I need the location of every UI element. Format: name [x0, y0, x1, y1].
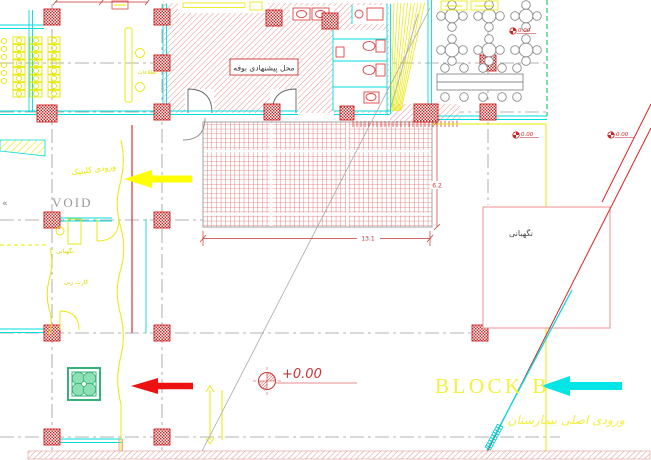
paved-courtyard [203, 121, 460, 227]
spot-level-road-right: 0.00 [608, 132, 634, 138]
long-table [437, 64, 523, 102]
spot-level-text: 0.00 [521, 132, 534, 138]
cyan-main-entrance-arrow [541, 376, 622, 396]
ramp-strip [390, 3, 425, 111]
spot-level-text: 0.00 [616, 132, 629, 138]
main-level-text: +0.00 [282, 367, 322, 382]
buffet-area: محل پیشنهادی بوفه [164, 0, 460, 121]
info-counter [125, 28, 132, 102]
block-b-label: BLOCK B [435, 374, 550, 398]
guard-post-box: نگهبانی [483, 207, 610, 328]
void-marker: « [2, 199, 8, 209]
guard-desk [68, 219, 81, 244]
bottom-wall-strip [28, 451, 650, 459]
planter [68, 368, 100, 400]
dimension-vertical [434, 119, 440, 230]
dim-height-text: 6.2 [432, 183, 442, 190]
yellow-entrance-arrow [124, 170, 192, 188]
dim-width-text: 13.1 [361, 236, 375, 243]
stairs [0, 140, 45, 156]
clinic-entrance-label: ورودی کلینیک [71, 162, 117, 177]
information-label: اطلاعات [137, 70, 157, 76]
door-arc [97, 219, 119, 241]
spot-level-terrace: 0.00 [510, 28, 536, 34]
card-punch-label: کارت زنی [64, 279, 89, 286]
guard-station-label: نگهبانی [56, 247, 74, 255]
top-dimension [53, 0, 150, 5]
void-label: VOID [52, 195, 93, 210]
door-arc [183, 118, 205, 140]
dimension-horizontal [200, 231, 433, 246]
hospital-main-entrance-label: ورودی اصلی بیمارستان [508, 413, 625, 427]
waiting-room: اطلاعات [1, 28, 157, 102]
guard-post-label: نگهبانی [509, 228, 533, 238]
terrace-tables [437, 1, 542, 102]
site-plan-canvas: محل پیشنهادی بوفه [0, 0, 651, 460]
buffet-label: محل پیشنهادی بوفه [233, 64, 294, 73]
spot-level-road-left: 0.00 [513, 132, 539, 138]
spot-level-text: 0.00 [518, 28, 531, 34]
door-arc [60, 311, 79, 330]
main-level-marker: +0.00 [253, 367, 357, 395]
